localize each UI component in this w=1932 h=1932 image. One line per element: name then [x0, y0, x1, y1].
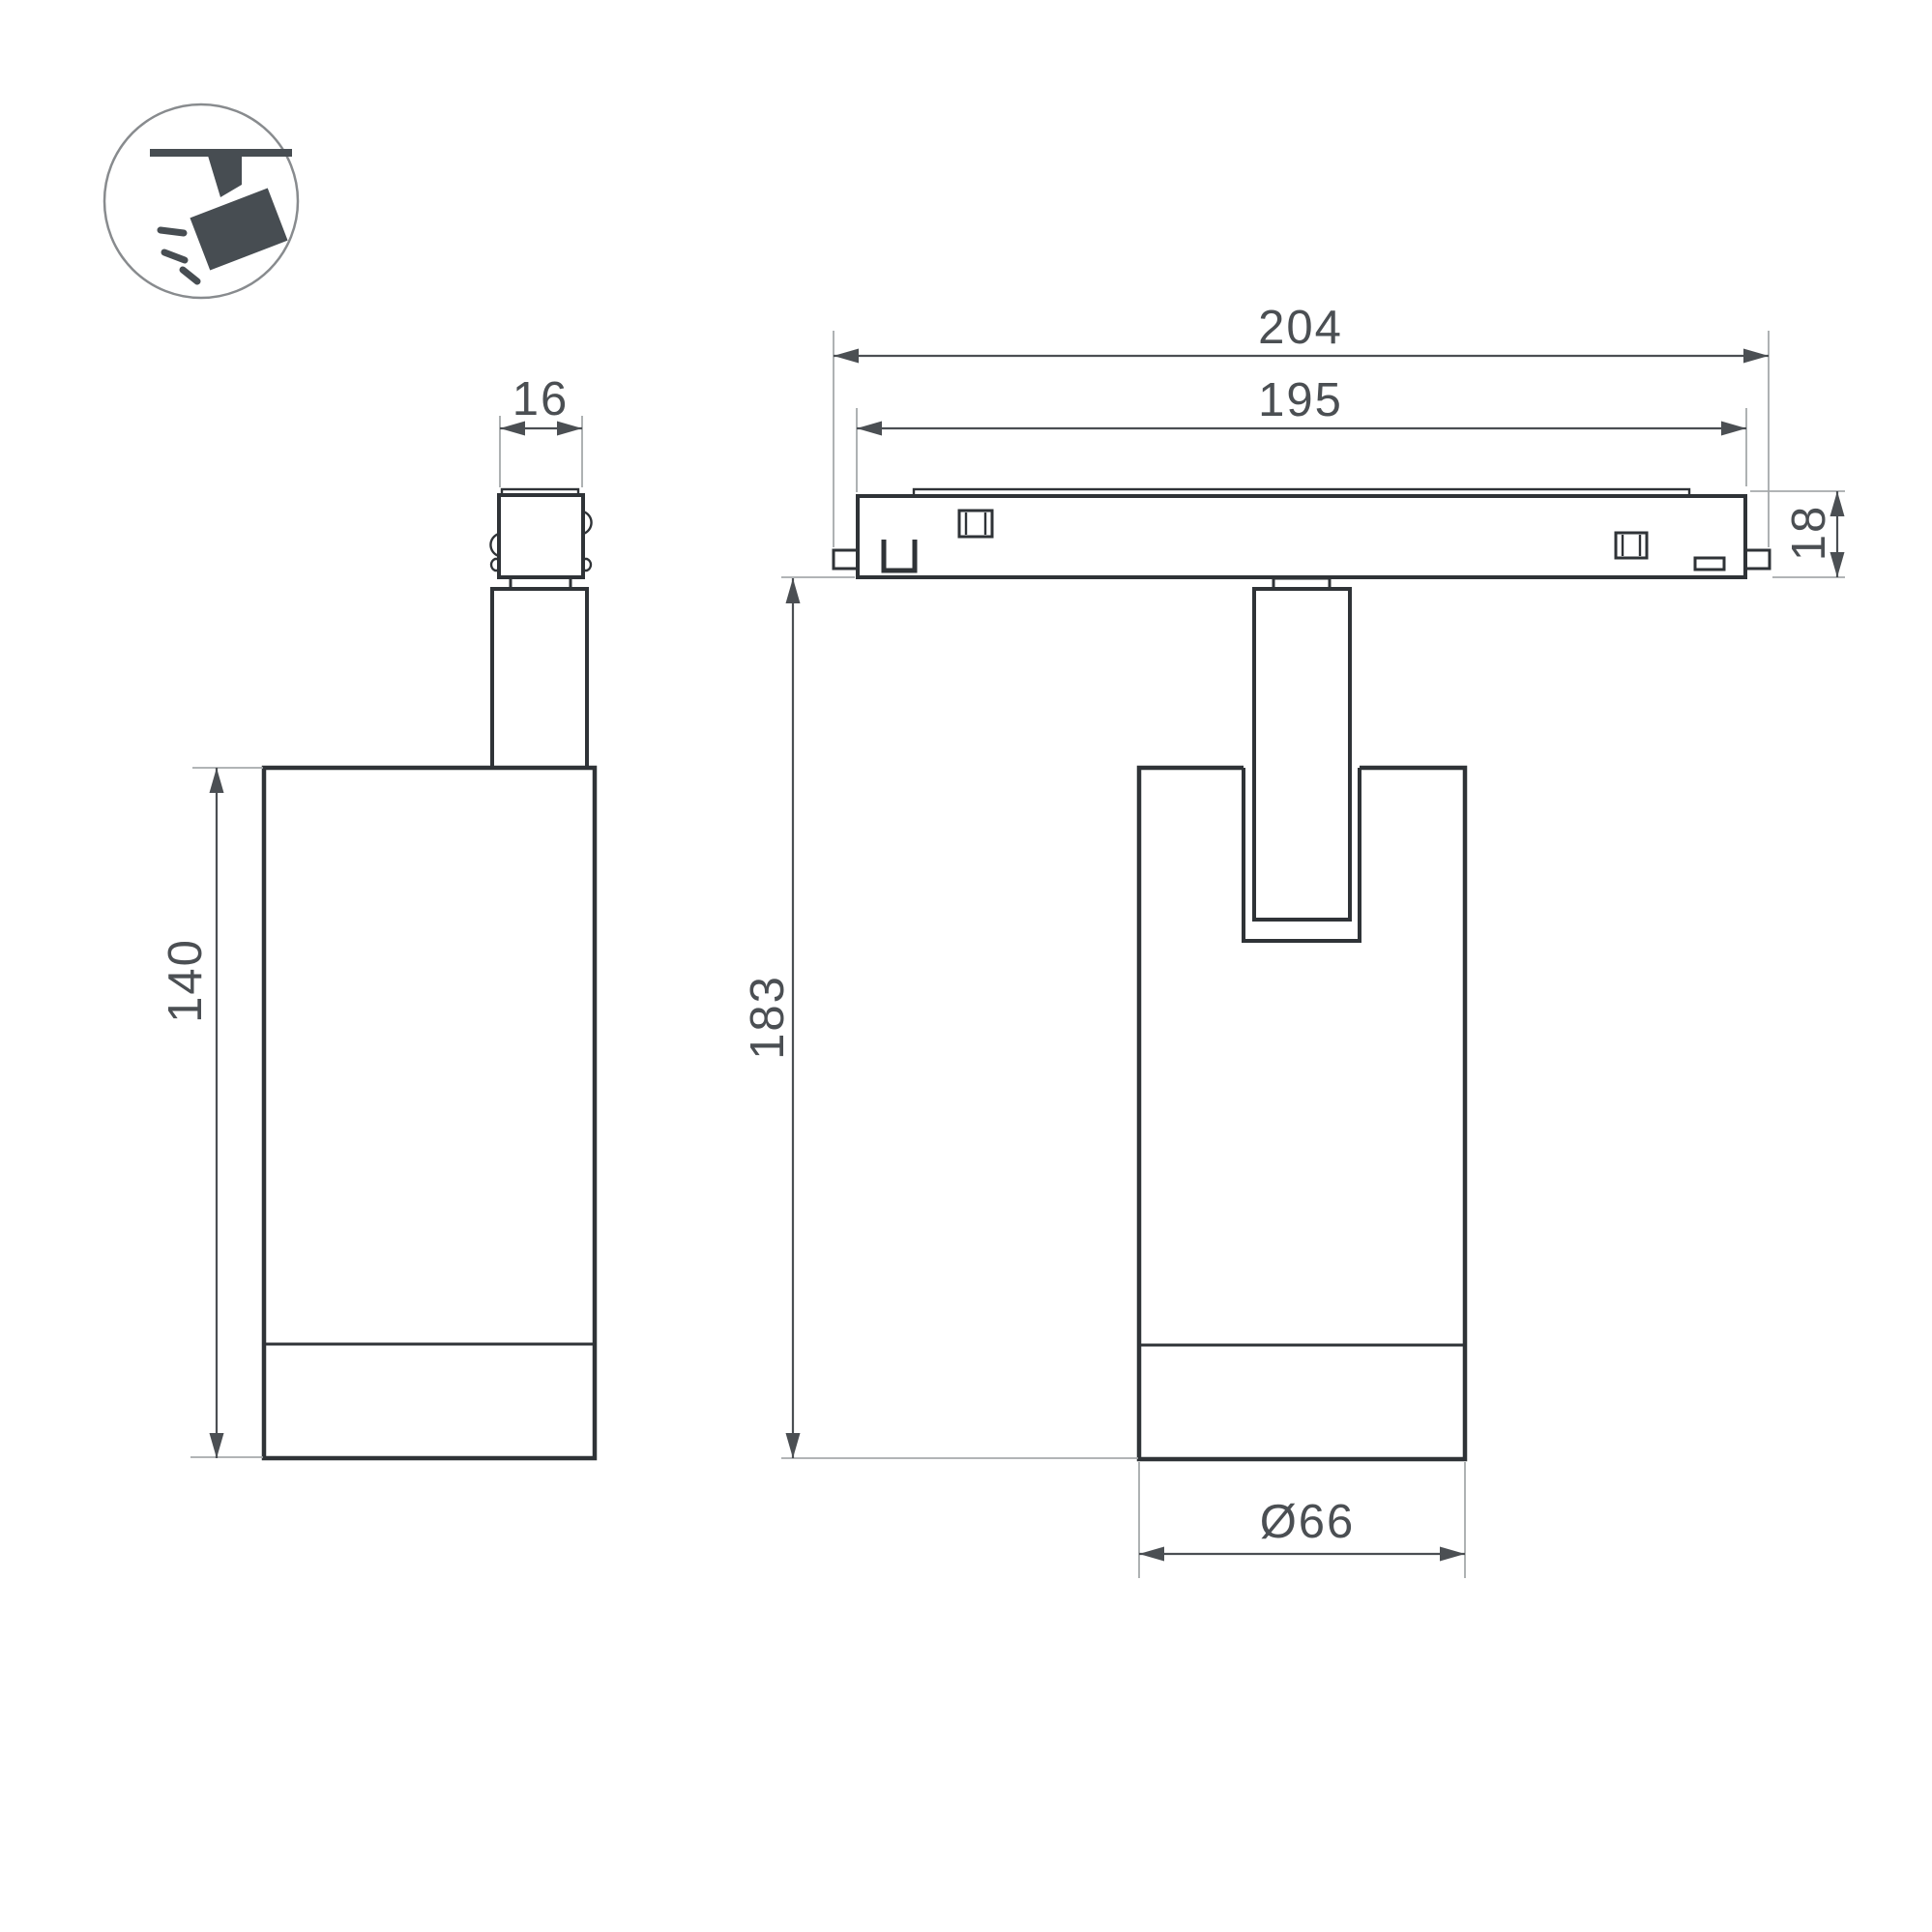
dim-label-body-height: 140: [159, 938, 213, 1023]
dimension-204: [834, 331, 1769, 547]
front-view: [834, 489, 1770, 1459]
front-body: [1139, 768, 1465, 1459]
dim-label-track-length-overall: 204: [1258, 301, 1343, 355]
dimension-183: [781, 577, 1138, 1458]
side-arm: [492, 589, 587, 768]
icon-ceiling-bar: [150, 149, 292, 157]
side-body: [264, 768, 595, 1458]
track-slot-left: [959, 511, 992, 537]
track-spotlight-icon: [104, 104, 298, 298]
dim-label-adapter-width: 16: [512, 372, 570, 426]
dim-label-track-height: 18: [1782, 505, 1836, 562]
icon-light-ray: [161, 230, 184, 233]
track-end-tab-right: [1745, 550, 1770, 569]
dimension-16: [500, 416, 582, 487]
track-clip: [884, 540, 915, 571]
dimension-drawing: [0, 0, 1932, 1932]
dim-label-body-diameter: Ø66: [1260, 1495, 1356, 1549]
track-end-tab-left: [834, 550, 858, 569]
dim-label-track-length-inner: 195: [1258, 373, 1343, 427]
side-adapter-box: [499, 495, 583, 577]
technical-drawing-page: 16 204 195 18 140 183 Ø66: [0, 0, 1932, 1932]
dimension-140: [190, 768, 263, 1458]
front-fork-slot: [1244, 768, 1360, 941]
front-arm: [1254, 589, 1350, 920]
side-view: [264, 489, 595, 1458]
track-slot-right: [1616, 533, 1647, 558]
track-contact-slot: [1695, 558, 1724, 570]
dim-label-overall-height: 183: [741, 975, 795, 1060]
